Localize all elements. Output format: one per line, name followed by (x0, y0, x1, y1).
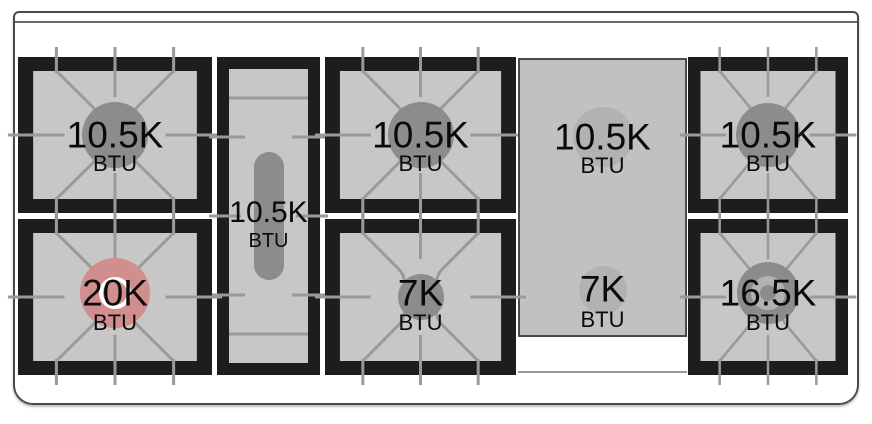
burner-rating: 7K (398, 275, 443, 312)
burner-unit: BTU (399, 153, 443, 175)
burner-rating: 16.5K (720, 275, 817, 312)
burner-bottom-left[interactable]: 20K BTU (18, 219, 212, 375)
burner-unit: BTU (93, 153, 137, 175)
burner-center-oval[interactable]: 10.5K BTU (217, 57, 320, 375)
burner-rating: 10.5K (229, 198, 307, 228)
burner-bottom-center[interactable]: 7K BTU (325, 219, 516, 375)
cooktop-diagram: 10.5K BTU 10.5K BTU 10.5K BTU 10.5K BTU (0, 0, 872, 424)
burner-unit: BTU (93, 312, 137, 334)
burner-unit: BTU (746, 153, 790, 175)
back-trim-line (15, 21, 857, 23)
burner-top-center[interactable]: 10.5K BTU (325, 57, 516, 213)
burner-rating: 10.5K (67, 117, 164, 154)
burner-rating: 7K (580, 271, 625, 308)
burner-rating: 10.5K (372, 117, 469, 154)
burner-top-right[interactable]: 10.5K BTU (688, 57, 848, 213)
burner-unit: BTU (249, 231, 289, 251)
griddle-cutout (518, 337, 687, 373)
burner-unit: BTU (399, 312, 443, 334)
burner-unit: BTU (746, 312, 790, 334)
burner-unit: BTU (581, 155, 625, 177)
burner-rating: 20K (82, 275, 148, 312)
burner-rating: 10.5K (554, 119, 651, 156)
burner-rating: 10.5K (720, 117, 817, 154)
griddle[interactable]: 10.5K BTU 7K BTU (518, 58, 687, 337)
burner-bottom-right[interactable]: 16.5K BTU (688, 219, 848, 375)
burner-top-left[interactable]: 10.5K BTU (18, 57, 212, 213)
burner-unit: BTU (581, 309, 625, 331)
